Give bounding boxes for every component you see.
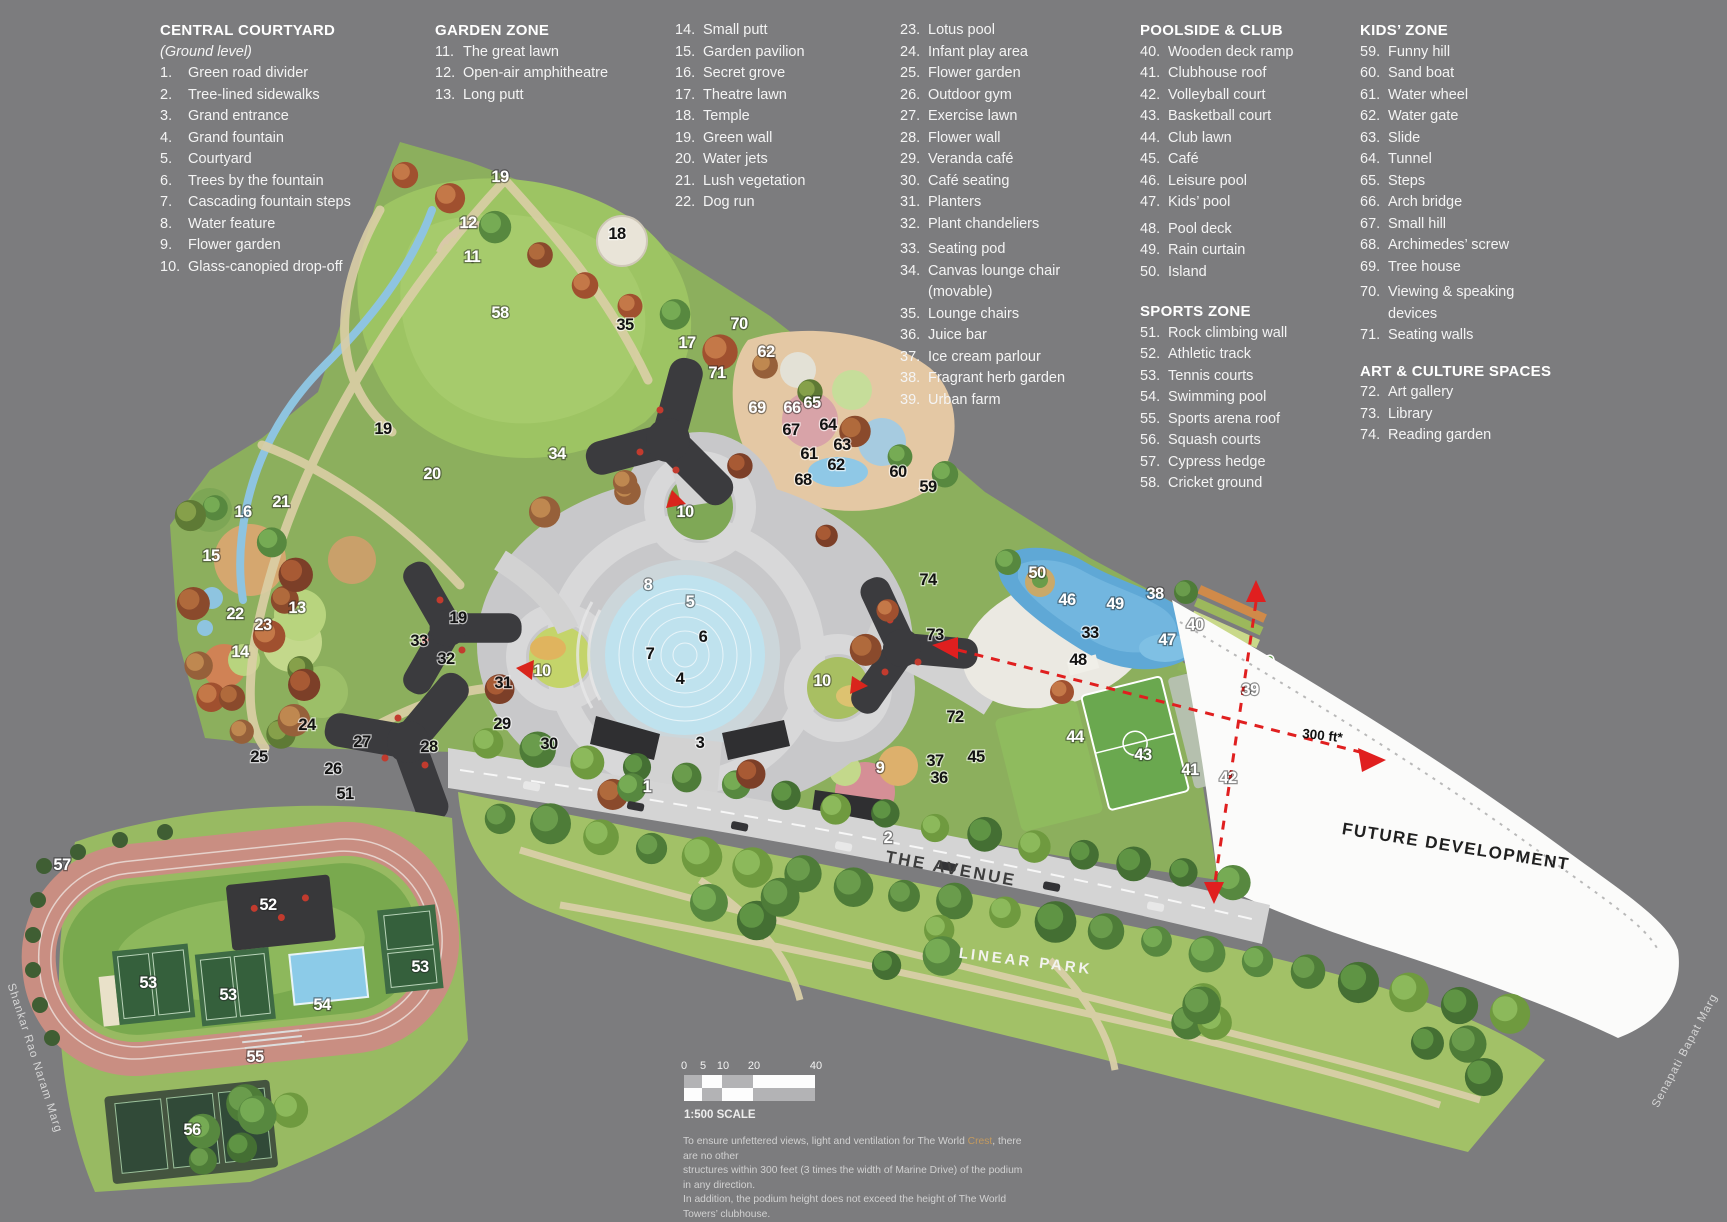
map-marker-69: 69 (748, 399, 766, 417)
map-marker-47: 47 (1158, 631, 1176, 649)
map-marker-44: 44 (1066, 728, 1085, 746)
map-marker-57: 57 (53, 856, 71, 874)
map-marker-53: 53 (219, 986, 237, 1004)
map-marker-31: 31 (494, 674, 512, 692)
map-marker-19: 19 (491, 168, 509, 186)
map-marker-5: 5 (686, 593, 695, 611)
svg-text:5: 5 (700, 1060, 706, 1072)
map-marker-68: 68 (794, 471, 812, 489)
map-marker-9: 9 (876, 759, 885, 777)
scale-ratio-label: 1:500 SCALE (684, 1109, 756, 1121)
map-marker-43: 43 (1134, 746, 1152, 764)
map-marker-65: 65 (803, 394, 821, 412)
site-map-illustration: THE AVENUE LINEAR PARK FUTURE DEVELOPMEN… (0, 0, 1727, 1200)
disclaimer-highlight: Crest (968, 1136, 993, 1147)
map-marker-2: 2 (884, 829, 893, 847)
map-marker-50: 50 (1028, 564, 1046, 582)
map-marker-24: 24 (298, 716, 317, 734)
map-marker-46: 46 (1058, 591, 1076, 609)
map-marker-67: 67 (782, 421, 800, 439)
map-marker-72: 72 (946, 708, 964, 726)
svg-text:20: 20 (748, 1060, 760, 1072)
map-marker-36: 36 (930, 769, 948, 787)
map-marker-22: 22 (226, 605, 244, 623)
map-marker-74: 74 (919, 571, 938, 589)
map-marker-25: 25 (250, 748, 268, 766)
map-marker-26: 26 (324, 760, 342, 778)
map-marker-71: 71 (708, 364, 726, 382)
map-marker-62: 62 (757, 343, 775, 361)
map-marker-73: 73 (926, 626, 944, 644)
map-marker-6: 6 (699, 628, 708, 646)
map-marker-60: 60 (889, 463, 907, 481)
map-marker-40: 40 (1186, 616, 1204, 634)
map-marker-54: 54 (313, 996, 332, 1014)
map-marker-14: 14 (231, 643, 250, 661)
map-marker-48: 48 (1069, 651, 1087, 669)
map-marker-62: 62 (827, 456, 845, 474)
map-marker-18: 18 (608, 225, 626, 243)
map-marker-51: 51 (336, 785, 354, 803)
map-marker-34: 34 (548, 445, 567, 463)
site-plan-page: { "legend": { "columns": [ { "x": 160, "… (0, 0, 1727, 1200)
map-marker-29: 29 (493, 715, 511, 733)
map-marker-63: 63 (833, 436, 851, 454)
map-marker-35: 35 (616, 316, 634, 334)
map-marker-28: 28 (420, 738, 438, 756)
map-marker-61: 61 (800, 445, 818, 463)
map-marker-42: 42 (1219, 769, 1237, 787)
map-marker-19: 19 (374, 420, 392, 438)
map-marker-58: 58 (491, 304, 509, 322)
map-marker-1: 1 (643, 778, 652, 796)
map-marker-53: 53 (139, 974, 157, 992)
map-marker-19: 19 (449, 609, 467, 627)
map-marker-23: 23 (254, 616, 272, 634)
map-marker-49: 49 (1106, 595, 1124, 613)
svg-text:40: 40 (810, 1060, 822, 1072)
map-marker-20: 20 (423, 465, 441, 483)
map-marker-10: 10 (533, 662, 551, 680)
map-marker-39: 39 (1241, 681, 1259, 699)
map-marker-13: 13 (288, 599, 306, 617)
map-marker-16: 16 (234, 503, 252, 521)
map-marker-37: 37 (926, 752, 944, 770)
map-marker-45: 45 (967, 748, 985, 766)
athletic-track (29, 829, 451, 1068)
map-marker-33: 33 (1081, 624, 1099, 642)
map-marker-4: 4 (676, 670, 686, 688)
svg-text:10: 10 (717, 1060, 729, 1072)
map-marker-52: 52 (259, 896, 277, 914)
map-marker-59: 59 (919, 478, 937, 496)
map-marker-32: 32 (437, 650, 455, 668)
map-marker-11: 11 (464, 248, 481, 266)
map-marker-3: 3 (696, 734, 705, 752)
map-marker-41: 41 (1181, 761, 1199, 779)
map-marker-70: 70 (730, 315, 748, 333)
map-marker-17: 17 (678, 334, 696, 352)
map-marker-21: 21 (272, 493, 290, 511)
map-marker-53: 53 (411, 958, 429, 976)
map-marker-12: 12 (459, 214, 477, 232)
map-marker-7: 7 (646, 645, 655, 663)
map-marker-55: 55 (246, 1048, 264, 1066)
map-marker-56: 56 (183, 1121, 201, 1139)
map-marker-10: 10 (813, 672, 831, 690)
map-marker-38: 38 (1146, 585, 1164, 603)
map-marker-33: 33 (410, 632, 428, 650)
disclaimer-note: To ensure unfettered views, light and ve… (683, 1135, 1023, 1222)
map-marker-10: 10 (676, 503, 694, 521)
map-marker-64: 64 (819, 416, 838, 434)
map-marker-15: 15 (202, 547, 220, 565)
map-marker-66: 66 (783, 399, 801, 417)
scale-bar: 0 5 10 20 40 1:500 SCALE (681, 1060, 822, 1121)
svg-text:0: 0 (681, 1060, 687, 1072)
map-marker-27: 27 (353, 733, 371, 751)
map-marker-8: 8 (644, 576, 653, 594)
map-marker-30: 30 (540, 735, 558, 753)
